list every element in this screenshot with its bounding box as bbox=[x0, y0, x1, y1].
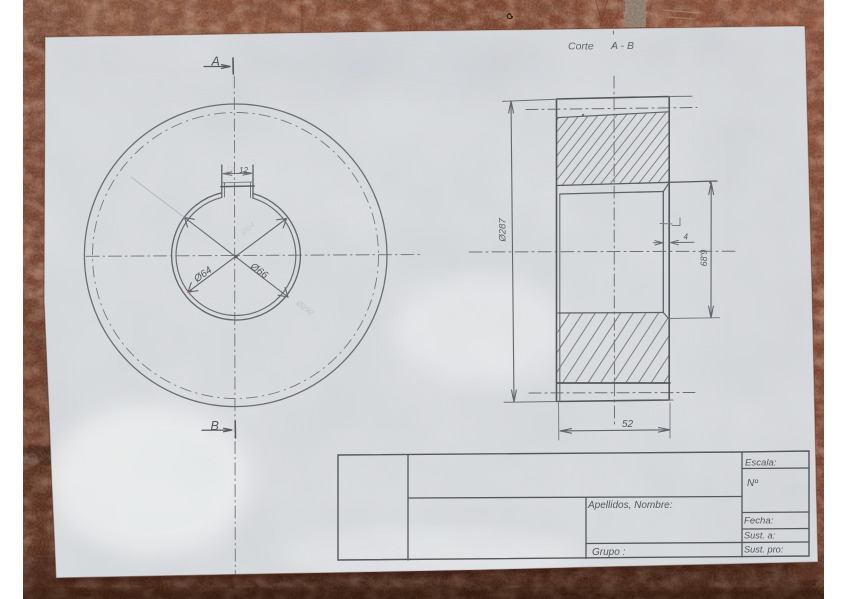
svg-text:Escala:: Escala: bbox=[745, 458, 777, 469]
svg-text:A - B: A - B bbox=[610, 40, 634, 52]
svg-text:Nº: Nº bbox=[747, 478, 759, 489]
svg-text:12: 12 bbox=[226, 167, 234, 174]
svg-text:Corte: Corte bbox=[568, 41, 594, 53]
svg-text:Sust. a:: Sust. a: bbox=[744, 531, 776, 541]
svg-text:Sust. pro:: Sust. pro: bbox=[744, 545, 784, 555]
svg-text:Grupo :: Grupo : bbox=[592, 547, 626, 558]
svg-text:B: B bbox=[211, 419, 219, 433]
svg-text:12: 12 bbox=[239, 166, 248, 175]
svg-text:Ø287: Ø287 bbox=[498, 218, 509, 243]
svg-text:Apellidos, Nombre:: Apellidos, Nombre: bbox=[587, 500, 673, 511]
svg-text:A: A bbox=[211, 55, 220, 69]
svg-text:Fecha:: Fecha: bbox=[744, 516, 774, 527]
svg-text:52: 52 bbox=[622, 419, 634, 430]
svg-text:68'9: 68'9 bbox=[699, 250, 709, 267]
svg-text:4: 4 bbox=[684, 233, 689, 242]
